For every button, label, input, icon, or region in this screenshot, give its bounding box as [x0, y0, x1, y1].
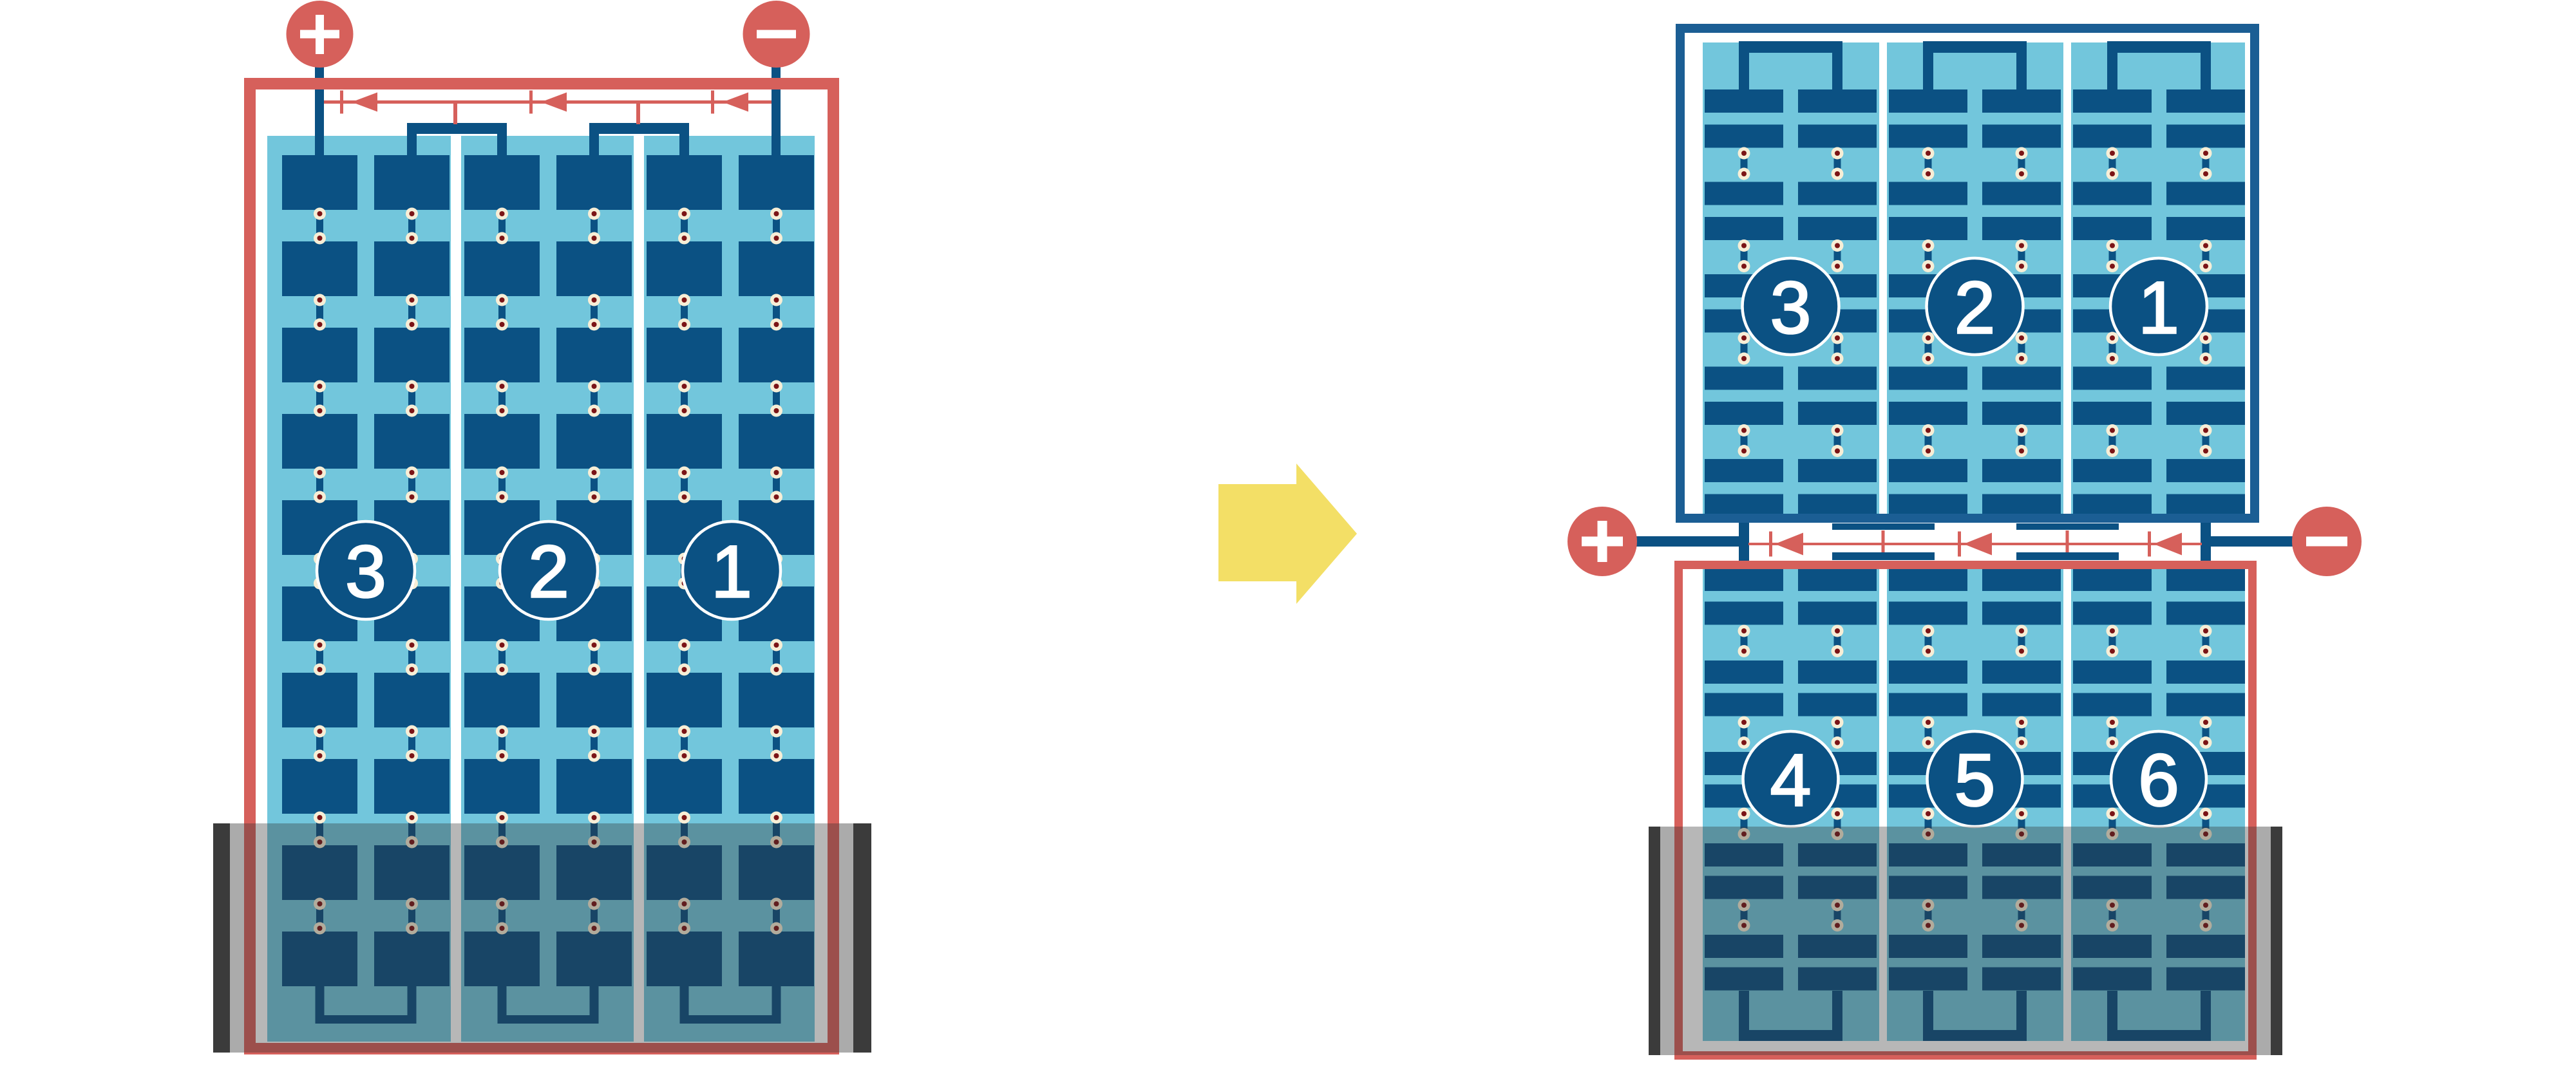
svg-text:6: 6 [2138, 739, 2179, 821]
svg-text:1: 1 [2138, 267, 2179, 349]
svg-text:3: 3 [345, 530, 386, 613]
svg-text:2: 2 [1955, 267, 1996, 349]
svg-text:3: 3 [1770, 267, 1812, 349]
svg-text:4: 4 [1770, 739, 1812, 821]
svg-text:5: 5 [1955, 739, 1996, 821]
svg-text:2: 2 [528, 530, 569, 613]
svg-text:1: 1 [711, 530, 752, 613]
